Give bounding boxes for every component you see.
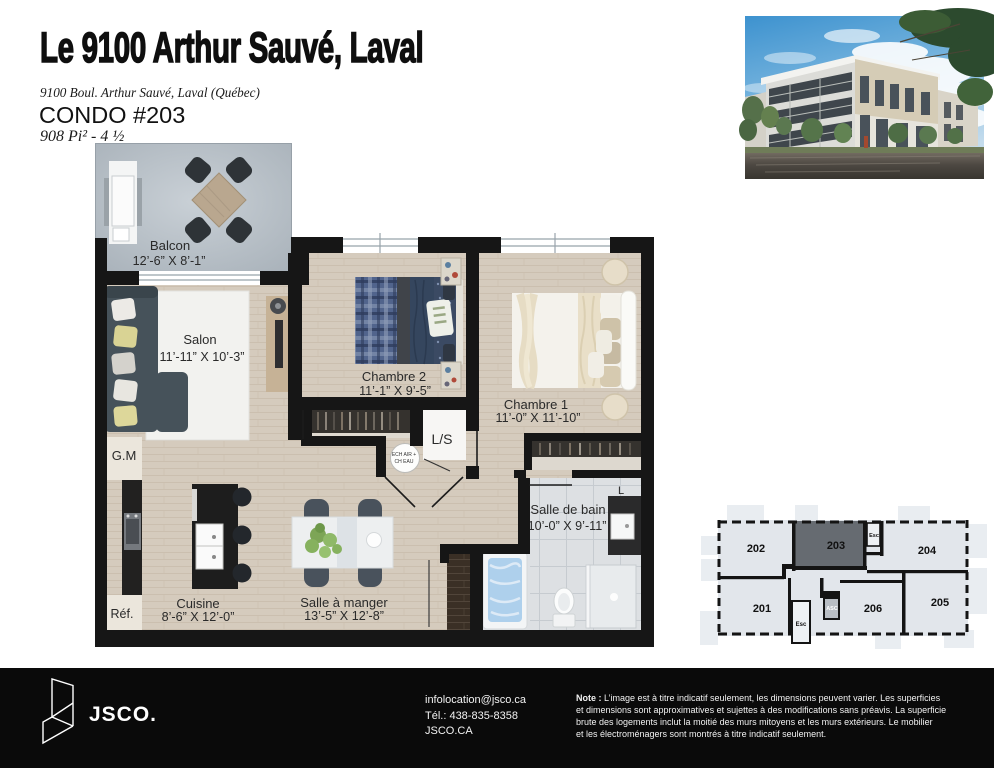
svg-text:12’-6” X 8’-1”: 12’-6” X 8’-1”	[133, 254, 206, 268]
svg-text:Esc: Esc	[796, 622, 807, 628]
svg-text:et dimensions sont approximati: et dimensions sont approximatives et suj…	[576, 705, 946, 715]
svg-text:JSCO.: JSCO.	[89, 703, 157, 726]
svg-text:11’-1” X 9’-5”: 11’-1” X 9’-5”	[359, 384, 431, 398]
svg-text:Réf.: Réf.	[111, 607, 134, 621]
svg-text:CONDO #203: CONDO #203	[39, 102, 185, 128]
svg-text:JSCO.CA: JSCO.CA	[425, 725, 473, 737]
svg-text:infolocation@jsco.ca: infolocation@jsco.ca	[425, 694, 527, 706]
svg-text:201: 201	[753, 603, 771, 615]
svg-text:202: 202	[747, 543, 765, 555]
svg-text:Salle de bain: Salle de bain	[530, 502, 605, 517]
svg-text:L: L	[618, 485, 624, 497]
svg-text:908 Pi² - 4 ½: 908 Pi² - 4 ½	[40, 128, 124, 145]
svg-text:ASC: ASC	[826, 606, 838, 612]
svg-text:8’-6” X 12’-0”: 8’-6” X 12’-0”	[162, 610, 235, 624]
svg-text:10’-0” X 9’-11”: 10’-0” X 9’-11”	[528, 519, 607, 533]
svg-text:Cuisine: Cuisine	[176, 596, 219, 611]
svg-text:Chambre 2: Chambre 2	[362, 369, 426, 384]
svg-text:L/S: L/S	[431, 431, 452, 447]
svg-text:Note : L’image est à titre ind: Note : L’image est à titre indicatif seu…	[576, 693, 941, 703]
svg-text:204: 204	[918, 545, 937, 557]
svg-text:11’-0” X 11’-10”: 11’-0” X 11’-10”	[496, 411, 581, 425]
svg-text:Chambre 1: Chambre 1	[504, 397, 568, 412]
svg-text:Salle à manger: Salle à manger	[300, 595, 388, 610]
svg-text:et les électroménagers sont mo: et les électroménagers sont montrés à ti…	[576, 729, 826, 739]
svg-text:Balcon: Balcon	[150, 238, 190, 253]
svg-text:brute des logements inclut la: brute des logements inclut la moitié des…	[576, 717, 933, 727]
svg-text:206: 206	[864, 603, 882, 615]
svg-text:Esc: Esc	[869, 533, 879, 539]
svg-text:11’-11” X 10’-3”: 11’-11” X 10’-3”	[160, 350, 245, 364]
svg-text:203: 203	[827, 540, 845, 552]
svg-text:ECH AIR +: ECH AIR +	[392, 452, 416, 458]
svg-text:G.M: G.M	[112, 448, 137, 463]
svg-text:Le 9100 Arthur Sauvé, Laval: Le 9100 Arthur Sauvé, Laval	[40, 24, 423, 72]
svg-text:CH EAU: CH EAU	[395, 459, 414, 465]
svg-text:Tél.: 438-835-8358: Tél.: 438-835-8358	[425, 710, 518, 722]
svg-text:13’-5” X 12’-8”: 13’-5” X 12’-8”	[304, 609, 384, 623]
svg-text:Salon: Salon	[183, 332, 216, 347]
svg-text:205: 205	[931, 597, 949, 609]
svg-text:9100 Boul. Arthur Sauvé, Laval: 9100 Boul. Arthur Sauvé, Laval (Québec)	[40, 85, 260, 100]
